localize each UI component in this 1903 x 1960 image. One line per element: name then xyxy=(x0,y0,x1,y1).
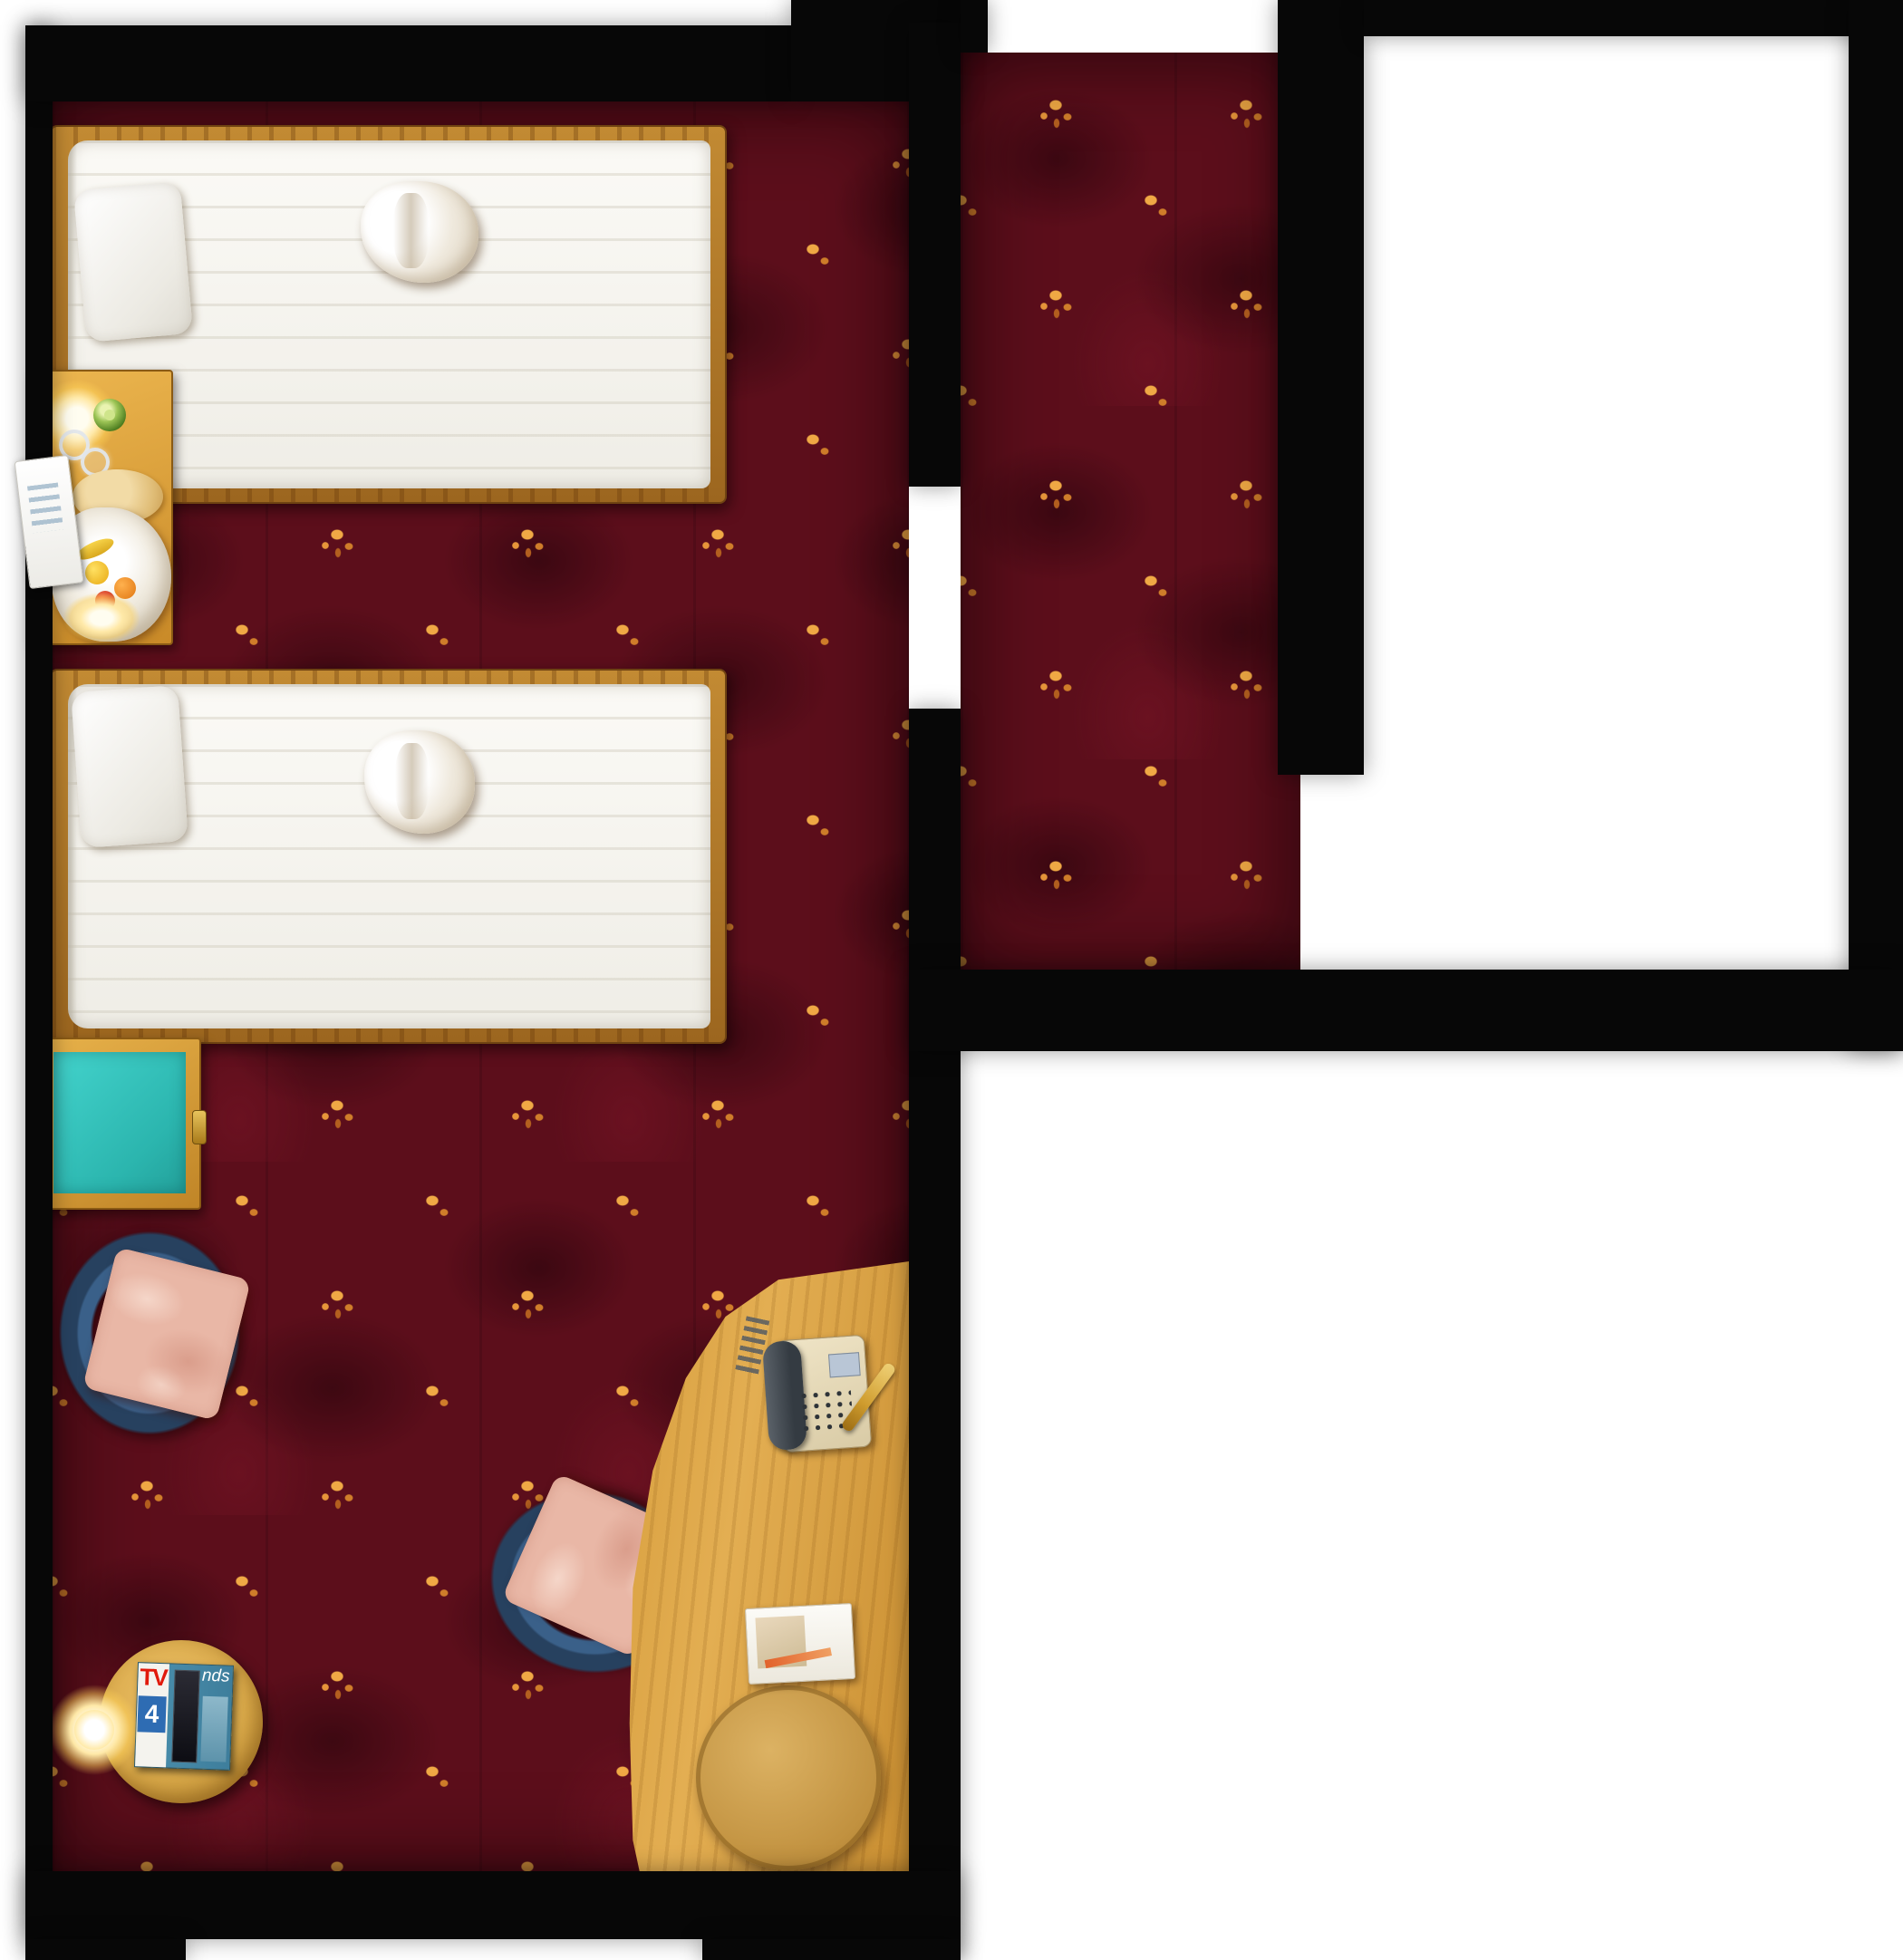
teal-table-latch xyxy=(192,1110,207,1144)
wall-divider-top xyxy=(909,23,961,487)
table-lamp-glow xyxy=(36,1672,152,1788)
wall-shelf-wood-strip xyxy=(0,254,27,1178)
teal-side-table xyxy=(38,1038,201,1210)
wall-left xyxy=(25,25,53,1939)
bed-2-pillow xyxy=(71,685,188,848)
teal-table-top xyxy=(53,1052,186,1193)
wall-divider-bottom xyxy=(909,709,961,1960)
wall-bottom-right-ext xyxy=(702,1939,961,1960)
hotel-room-floorplan: TV 4 nds xyxy=(0,0,1903,1960)
magazine-cover-photo xyxy=(171,1670,200,1763)
wall-bottom xyxy=(25,1871,961,1939)
wall-bathroom-top xyxy=(1364,0,1903,36)
wall-top-a xyxy=(25,25,791,101)
magazine-script-title: nds xyxy=(202,1666,230,1687)
wine-bottle xyxy=(93,399,126,431)
wall-bottom-left-ext xyxy=(25,1939,186,1960)
magazine-cover-panel xyxy=(200,1696,227,1762)
telephone xyxy=(776,1335,872,1453)
reading-lamp-bottom-glow xyxy=(52,585,151,651)
wall-bathroom-left xyxy=(1278,0,1364,775)
hallway-carpet xyxy=(961,53,1300,974)
wall-shelf-c xyxy=(0,1568,27,1959)
wall-bathroom-right xyxy=(1849,0,1903,1051)
wall-south xyxy=(909,970,1903,1051)
hotel-brochure xyxy=(745,1603,855,1685)
round-stool xyxy=(696,1685,881,1870)
wall-hall-top xyxy=(961,0,988,53)
magazine-masthead: TV xyxy=(140,1663,167,1692)
bed-1-pillow xyxy=(73,181,193,343)
telephone-display xyxy=(828,1352,861,1377)
armchair-1 xyxy=(45,1216,254,1450)
table-lamp xyxy=(74,1710,114,1750)
